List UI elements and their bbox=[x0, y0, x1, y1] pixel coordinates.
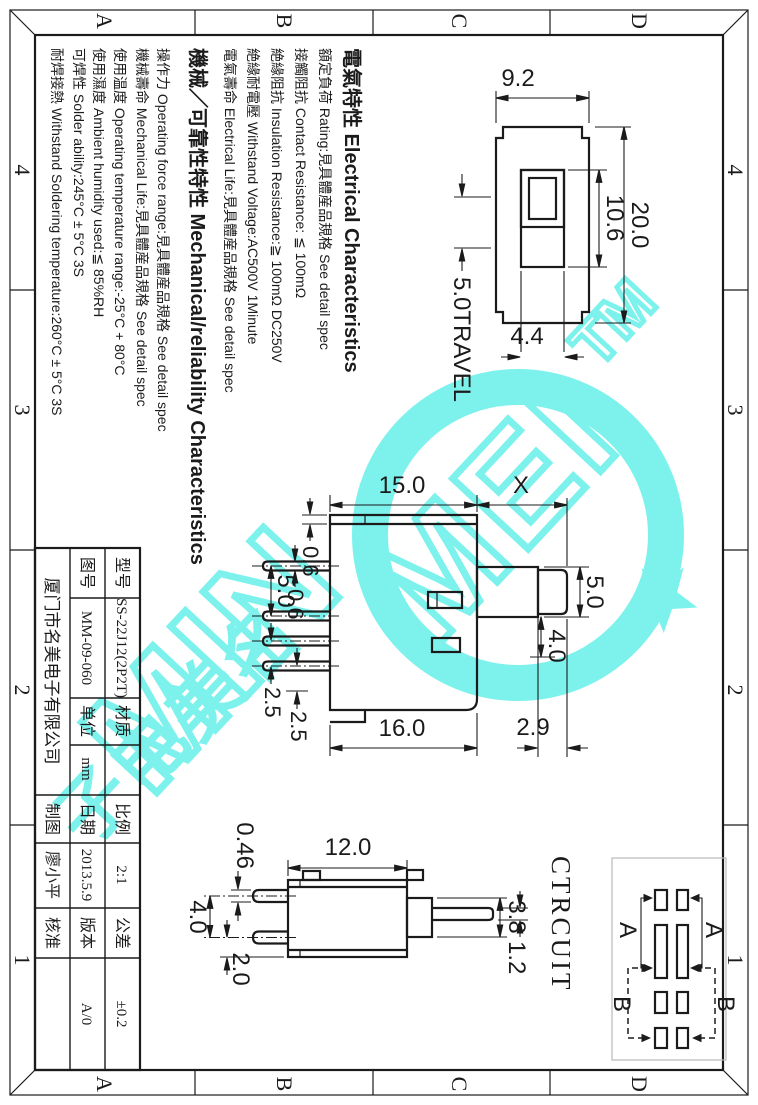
note-line: 操作力 Operating force range:見具體産品規格 See de… bbox=[155, 48, 171, 432]
circuit-label-a-lower: A bbox=[614, 922, 641, 938]
drawing-sheet: MIN MEI TM 名 美 电 子 bbox=[0, 0, 758, 1105]
drawing-no-label: 图号 bbox=[78, 557, 96, 589]
front-view-body-outline bbox=[330, 515, 477, 710]
circuit-label-b-upper: B bbox=[712, 996, 739, 1012]
note-line: 使用濕度 Ambient humidity used:≦ 85%RH bbox=[91, 48, 107, 317]
dim-top-travel: 5.0TRAVEL bbox=[448, 277, 475, 402]
note-line: 電氣壽命 Electrical Life:見具體産品規格 See detail … bbox=[222, 48, 238, 393]
circuit-bracket-a-lower bbox=[641, 898, 651, 968]
tolerance-label: 公差 bbox=[113, 917, 131, 949]
circuit-label-b-lower: B bbox=[608, 996, 635, 1012]
top-view-body-outline bbox=[496, 127, 589, 323]
spec-notes: 電氣特性 Electrical Characteristics 額定負荷 Rat… bbox=[49, 48, 364, 565]
zone-letter-left-b: B bbox=[272, 14, 297, 29]
zone-number-bottom-2: 2 bbox=[10, 685, 35, 696]
note-line: 機械／可靠性特性 Mechanical/reliability Characte… bbox=[186, 48, 210, 565]
model-value: SS-22J12(2P2T) bbox=[113, 598, 129, 698]
note-line: 使用温度 Operating temperature range:-25°C +… bbox=[112, 48, 128, 376]
date-value: 2013.5.9 bbox=[78, 849, 94, 902]
note-line: 接觸阻抗 Contact Resistance: ≦ 100mΩ bbox=[293, 48, 309, 298]
dim-front-pitch-a: 5.0 bbox=[272, 574, 299, 607]
side-view-pins bbox=[202, 890, 296, 944]
dim-side-shaft: 1.2 bbox=[503, 941, 530, 974]
dim-side-base: 3.8 bbox=[503, 900, 530, 933]
circuit-diagram: A A B B CTRCUIT bbox=[546, 856, 739, 1060]
circuit-pads bbox=[655, 890, 688, 1048]
circuit-label-a-upper: A bbox=[700, 922, 727, 938]
model-label: 型号 bbox=[113, 557, 131, 589]
unit-label: 单位 bbox=[78, 705, 96, 737]
top-view-knob-inner bbox=[529, 178, 556, 219]
note-line: 電氣特性 Electrical Characteristics bbox=[340, 48, 364, 373]
drawn-label: 制图 bbox=[43, 803, 61, 835]
note-line: 耐焊接熱 Withstand Soldering temperature:260… bbox=[49, 48, 65, 415]
dim-front-total: 16.0 bbox=[379, 715, 426, 742]
dim-front-pitch-c: 2.5 bbox=[286, 711, 311, 742]
scale-value: 2:1 bbox=[113, 865, 129, 884]
top-view: 20.0 10.6 9.2 4.4 5.0TRAVEL bbox=[448, 65, 653, 402]
dim-front-knob-w: 5.0 bbox=[581, 575, 608, 608]
side-view-tab bbox=[303, 871, 320, 880]
side-view-ear bbox=[407, 870, 423, 880]
dim-front-body: 15.0 bbox=[379, 472, 426, 499]
version-value: A/0 bbox=[78, 1003, 94, 1026]
front-view-side-tab bbox=[330, 710, 365, 722]
note-line: 機械壽命 Mechanical Life:見具體産品規格 See detail … bbox=[134, 48, 150, 407]
front-view-knob-base bbox=[477, 567, 538, 617]
zone-letter-right-b: B bbox=[272, 1077, 297, 1092]
company-name: 厦门市名美电子有限公司 bbox=[42, 578, 61, 765]
front-view: 15.0 X 16.0 2.9 5.0 4.0 0.6 0.6 5.0 2.5 … bbox=[250, 472, 608, 757]
dim-front-cover: 0.6 bbox=[298, 546, 323, 577]
material-label: 材质 bbox=[113, 705, 131, 737]
zone-number-bottom-1: 1 bbox=[10, 955, 35, 966]
zone-letter-right-a: A bbox=[92, 1076, 117, 1092]
circuit-title: CTRCUIT bbox=[546, 856, 576, 993]
rotated-drawing: 4 3 2 1 4 3 2 1 D C B A D C B A bbox=[0, 0, 758, 1105]
unit-value: mm bbox=[78, 757, 94, 781]
date-label: 日期 bbox=[78, 803, 96, 835]
note-line: 額定負荷 Rating:見具體産品規格 See detail spec bbox=[317, 48, 333, 350]
zone-letter-right-d: D bbox=[627, 1076, 652, 1092]
dim-top-width: 20.0 bbox=[626, 202, 653, 249]
note-line: 絶緣阻抗 Insulation Resistance:≧ 100mΩ DC250… bbox=[269, 48, 285, 363]
note-line: 絶緣耐電壓 Withstand Voltage:AC500V 1Minute bbox=[245, 48, 261, 345]
front-view-knob-cap bbox=[538, 570, 567, 614]
title-block: 型号 SS-22J12(2P2T) 材质 比例 2:1 公差 ±0.2 图号 M… bbox=[35, 548, 140, 1070]
front-view-window-2 bbox=[432, 638, 460, 652]
dim-front-cap-w: 4.0 bbox=[543, 629, 570, 662]
front-view-window-1 bbox=[428, 592, 462, 608]
side-view-knob-base bbox=[407, 898, 432, 937]
dim-side-body: 12.0 bbox=[325, 834, 372, 861]
approved-label: 核准 bbox=[43, 917, 61, 949]
dim-top-knob: 4.4 bbox=[510, 323, 543, 350]
side-view-shaft bbox=[432, 908, 493, 920]
zone-number-top-1: 1 bbox=[723, 955, 748, 966]
zone-letter-right-c: C bbox=[447, 1077, 472, 1092]
version-label: 版本 bbox=[78, 917, 96, 949]
zone-number-top-3: 3 bbox=[723, 405, 748, 416]
dim-front-pitch-b: 2.5 bbox=[260, 687, 285, 718]
zone-number-bottom-4: 4 bbox=[10, 165, 35, 176]
dim-top-height: 9.2 bbox=[501, 65, 534, 92]
scale-label: 比例 bbox=[113, 803, 131, 835]
zone-letter-left-c: C bbox=[447, 14, 472, 29]
side-view-body-outline bbox=[288, 880, 407, 957]
zone-letter-left-d: D bbox=[627, 13, 652, 29]
drawing-no-value: MM-09-060 bbox=[78, 611, 94, 685]
dim-side-pitch: 4.0 bbox=[184, 900, 211, 933]
zone-number-top-2: 2 bbox=[723, 685, 748, 696]
dim-top-slot: 10.6 bbox=[601, 195, 628, 242]
tolerance-value: ±0.2 bbox=[113, 1001, 129, 1028]
circuit-box bbox=[612, 858, 726, 1060]
dim-front-x: X bbox=[513, 472, 529, 499]
dim-front-cap-h: 2.9 bbox=[516, 714, 549, 741]
note-line: 可焊性 Solder ability:245°C ± 5°C 3S bbox=[71, 48, 87, 277]
zone-number-top-4: 4 bbox=[723, 165, 748, 176]
dim-side-pin: 0.46 bbox=[231, 822, 258, 869]
dim-side-edge: 2.0 bbox=[227, 952, 254, 985]
side-view: 12.0 0.46 4.0 2.0 3.8 1.2 bbox=[184, 822, 530, 985]
zone-letter-left-a: A bbox=[92, 13, 117, 29]
drawn-value: 廖小平 bbox=[43, 851, 62, 899]
zone-number-bottom-3: 3 bbox=[10, 405, 35, 416]
